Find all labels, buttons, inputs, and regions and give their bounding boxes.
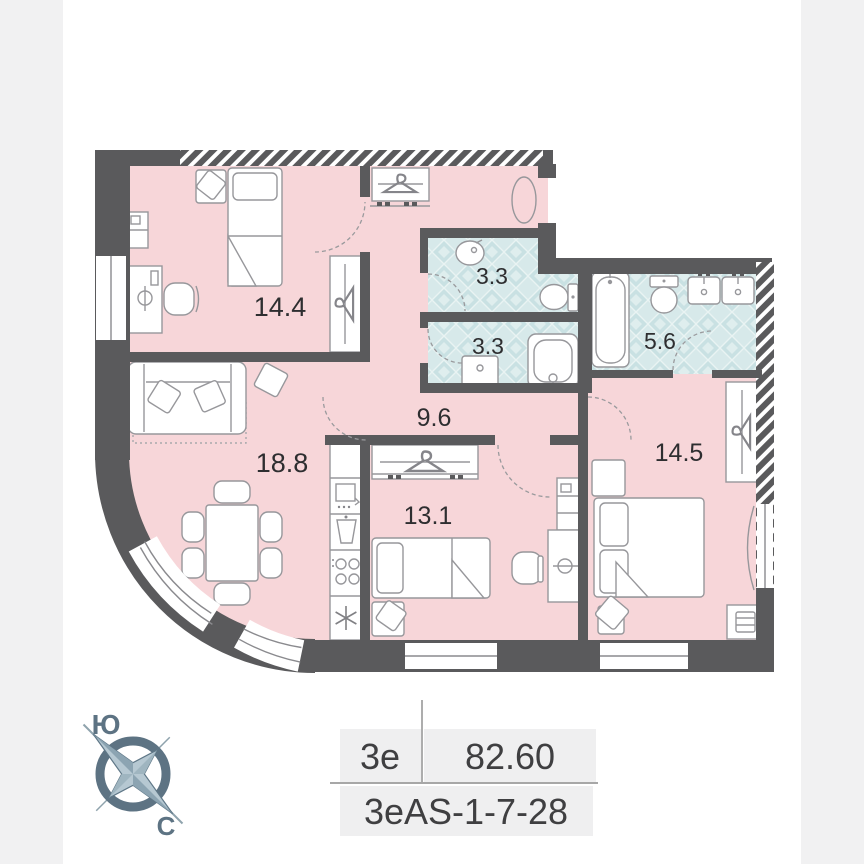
pillow (600, 503, 628, 546)
washbasin-icon (456, 241, 484, 265)
wall-bottom (300, 640, 774, 672)
pillow (233, 173, 277, 200)
wall-bedroom1-bottom (130, 352, 367, 362)
wall-bath-left-a (420, 228, 428, 273)
wall-upper-right (538, 258, 772, 274)
room-label-bedroom1: 14.4 (254, 292, 307, 322)
total-area-value: 82.60 (465, 736, 555, 777)
wall-top-hatched (180, 150, 543, 166)
room-label-bedroom2: 13.1 (404, 502, 453, 530)
compass-rose-icon: Ю С (47, 688, 220, 861)
bathtub-icon (592, 272, 629, 367)
floorplan-screenshot: 14.4 3.3 3.3 5.6 9.6 18.8 13.1 14.5 Ю С (0, 0, 864, 864)
compass-south-label: Ю (92, 709, 121, 740)
shower-tray-icon (528, 334, 578, 388)
chair (260, 548, 282, 578)
sofa-icon (128, 362, 246, 434)
wall-bedroom2-right (578, 378, 588, 640)
unit-code-value: 3еAS-1-7-28 (364, 791, 568, 832)
wall-bath-divider (420, 312, 582, 322)
wall-bath56-bottom-b (712, 370, 762, 378)
chair (214, 481, 250, 503)
nightstand (592, 460, 625, 496)
dining-table-icon (206, 505, 258, 581)
wall-bedroom1-stub (360, 166, 370, 197)
info-table: 3е 82.60 3еAS-1-7-28 (330, 700, 598, 836)
chair (182, 512, 204, 542)
chair (214, 583, 250, 605)
room-label-bath-top: 3.3 (476, 263, 508, 289)
desk-chair (164, 283, 194, 315)
entry-step-upper (538, 164, 556, 178)
toilet-icon (540, 285, 568, 310)
wall-bath56-bottom-a (585, 370, 673, 378)
compass-north-label: С (157, 811, 176, 841)
floorplan-canvas: 14.4 3.3 3.3 5.6 9.6 18.8 13.1 14.5 Ю С (0, 0, 864, 864)
room-label-hallway: 9.6 (417, 404, 452, 432)
wall-kitchen (360, 443, 370, 640)
room-label-bath-main: 5.6 (644, 328, 676, 354)
room-label-bedroom3: 14.5 (655, 439, 704, 467)
room-label-living: 18.8 (256, 448, 309, 478)
chair (260, 512, 282, 542)
pillow (377, 543, 403, 593)
room-label-bath-middle: 3.3 (472, 333, 504, 359)
wall-bedroom1-right (360, 252, 370, 362)
wall-bath-top (420, 228, 542, 238)
wall-bedroom2-top-a (368, 435, 495, 445)
chair (182, 548, 204, 578)
wall-bath-bottom (420, 383, 592, 393)
plan-type-value: 3е (360, 736, 400, 777)
